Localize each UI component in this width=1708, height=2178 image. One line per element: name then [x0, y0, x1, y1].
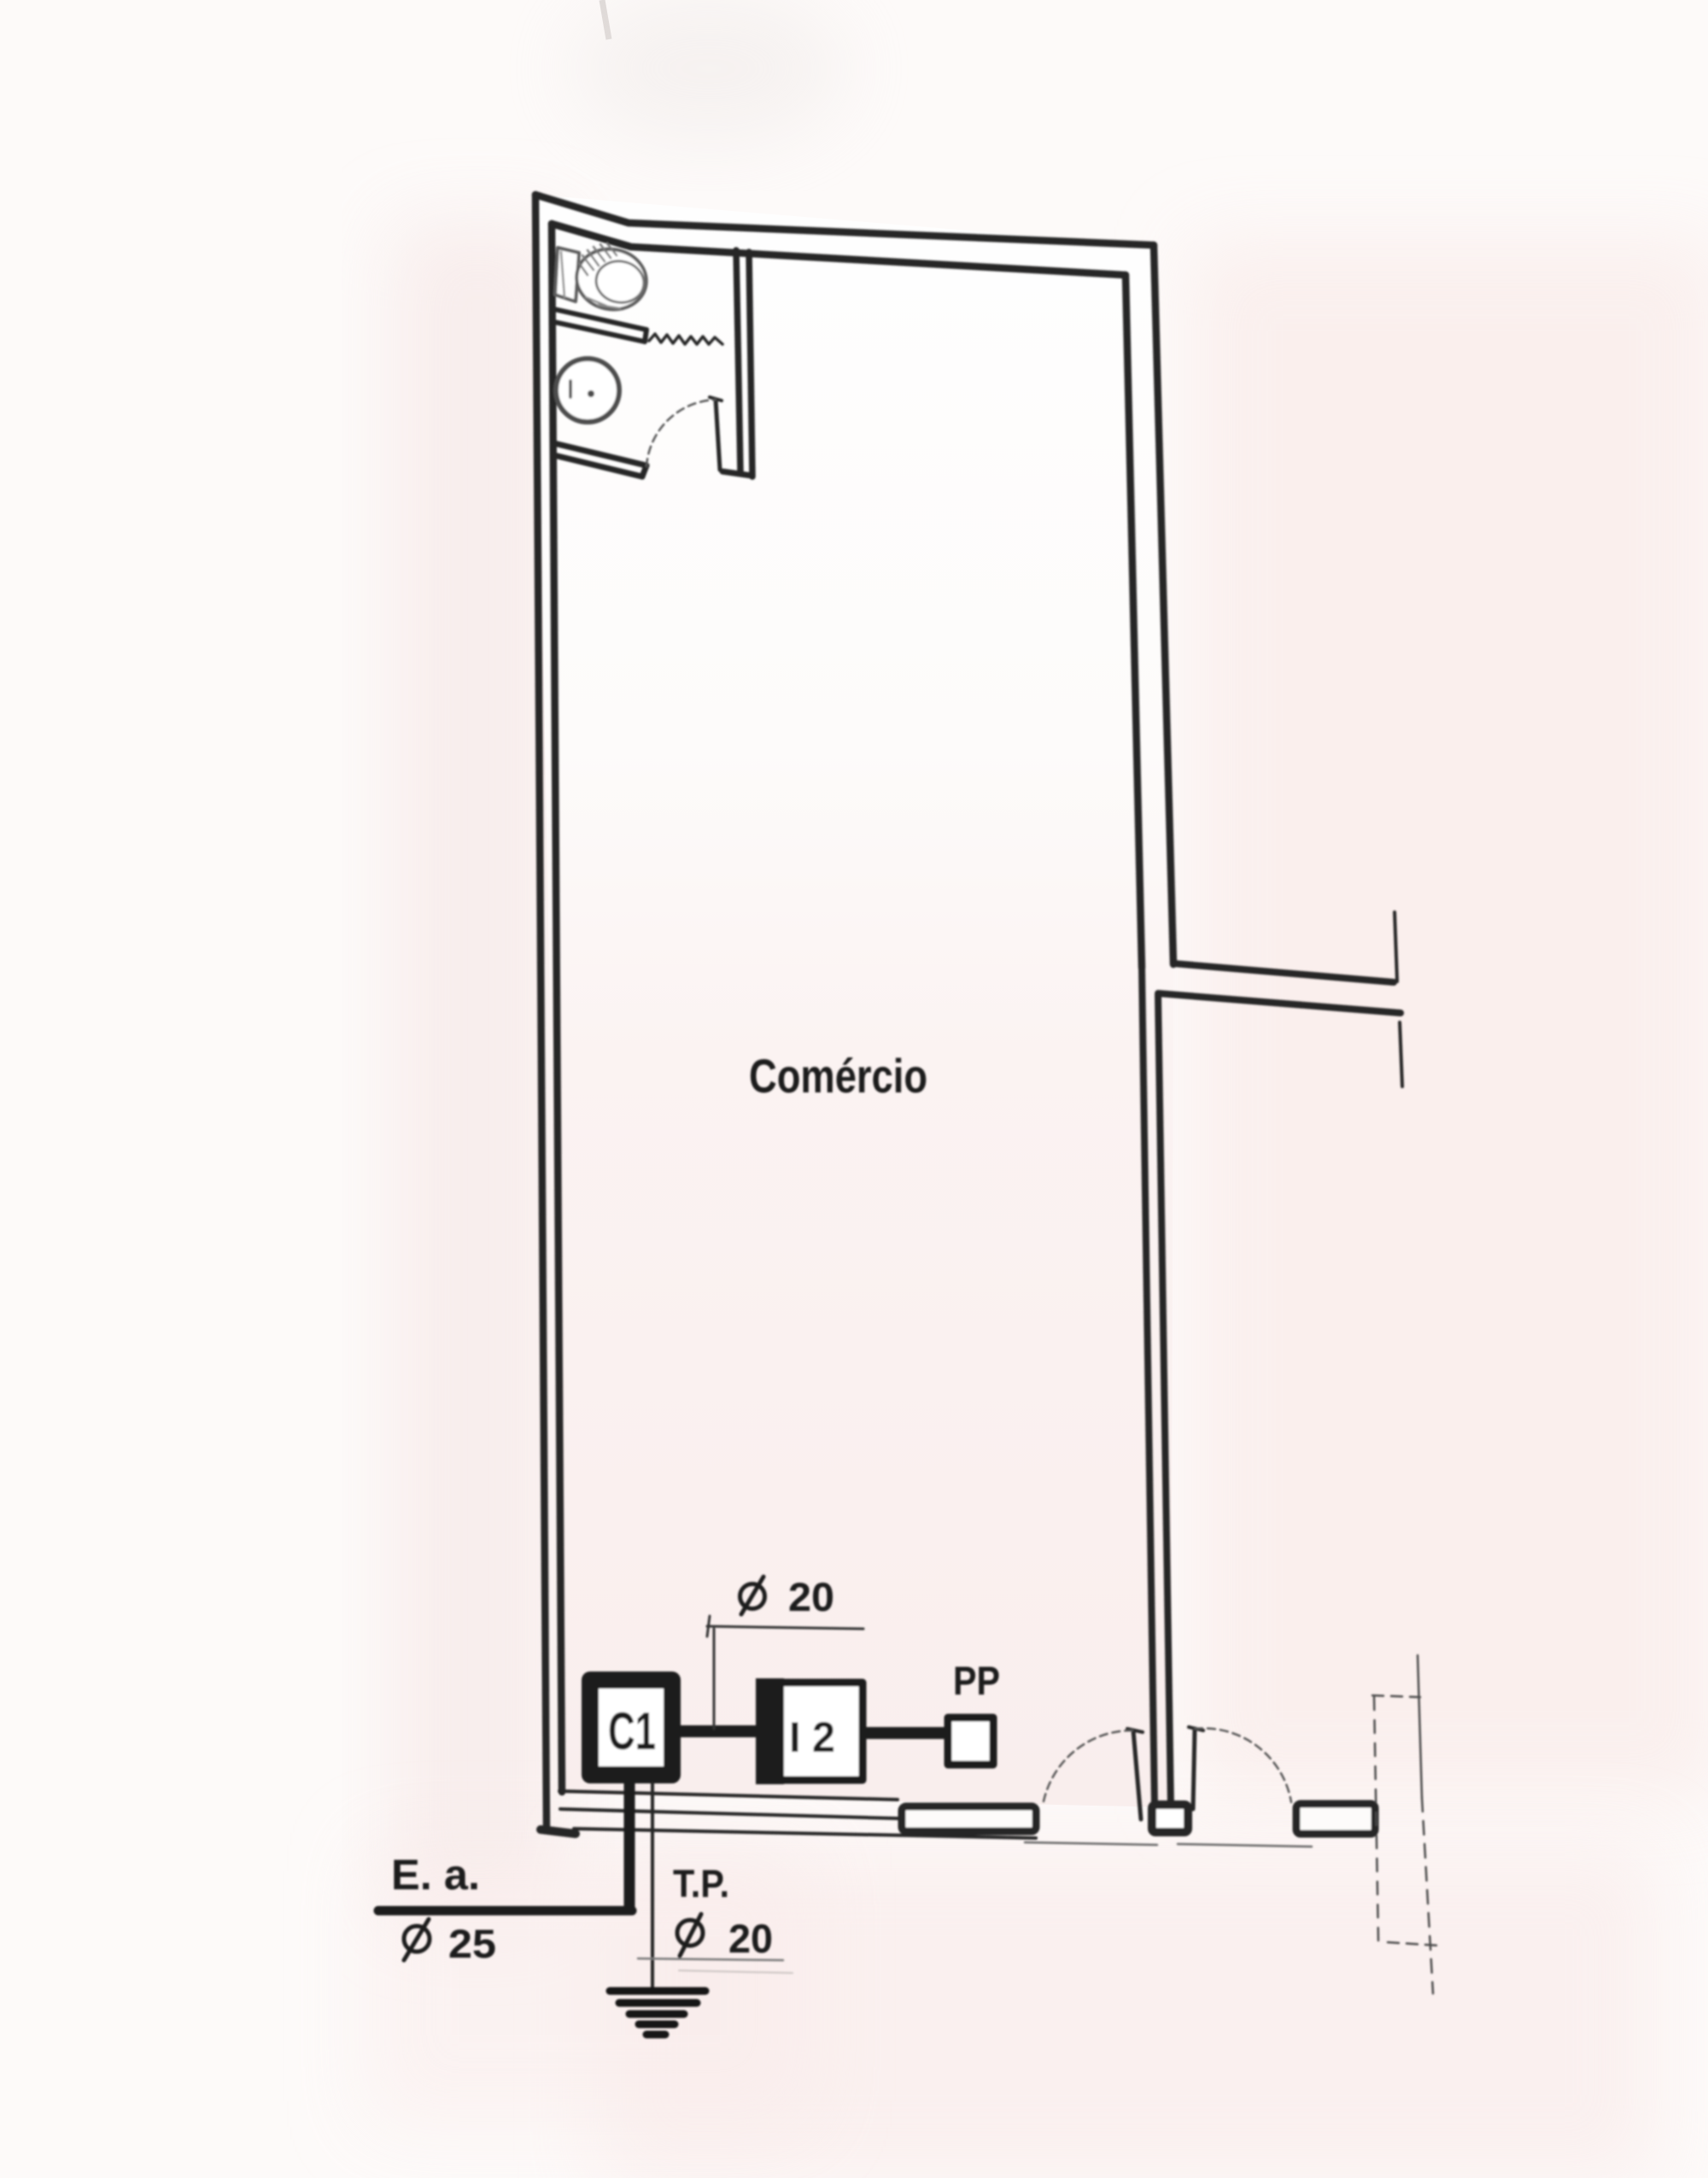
svg-text:20: 20 [788, 1574, 834, 1619]
svg-text:PP: PP [953, 1658, 1000, 1703]
svg-text:T.P.: T.P. [673, 1862, 729, 1906]
svg-text:25: 25 [448, 1921, 496, 1966]
svg-text:20: 20 [728, 1916, 773, 1961]
svg-text:E. a.: E. a. [391, 1851, 480, 1899]
svg-text:Comércio: Comércio [749, 1049, 927, 1103]
svg-text:C1: C1 [608, 1702, 656, 1761]
svg-text:I 2: I 2 [789, 1713, 835, 1761]
